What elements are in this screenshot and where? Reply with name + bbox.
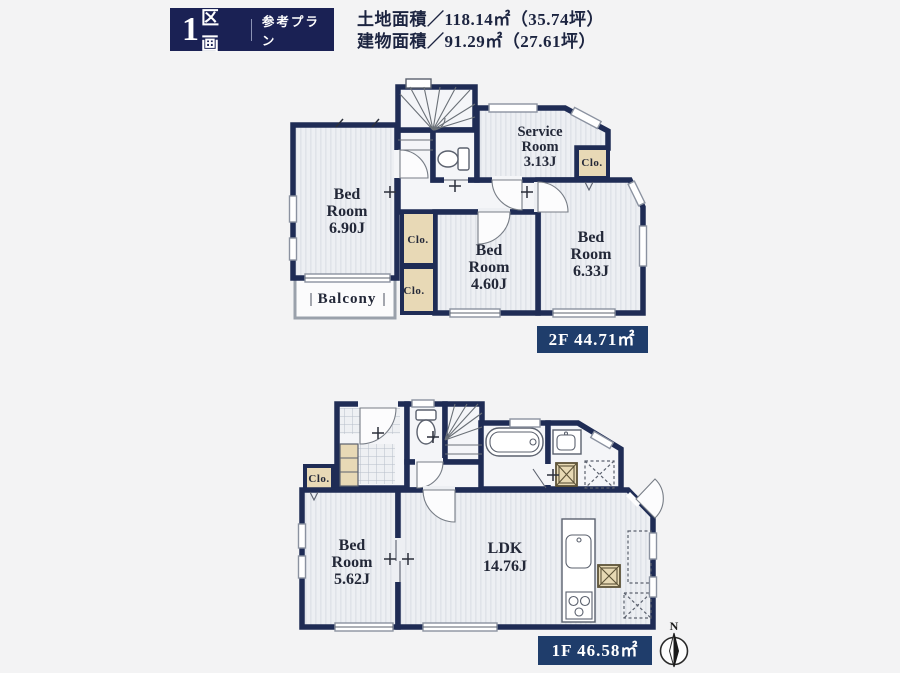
- north-label: N: [670, 619, 679, 633]
- bedroom-460-line2: Room: [469, 259, 511, 276]
- bedroom-633-line2: Room: [571, 246, 613, 263]
- floor-plan-svg: Bed Room 6.90J Service Room 3.13J Bed Ro…: [0, 0, 900, 673]
- floor-hatch: [598, 565, 620, 587]
- service-room-line1: Service: [517, 124, 563, 140]
- closet-2f-lower-label: Clo.: [403, 285, 424, 297]
- bedroom-562-area: 5.62J: [334, 571, 370, 588]
- bedroom-460-area: 4.60J: [471, 276, 507, 293]
- bathtub: [486, 428, 543, 456]
- floor-plan-page: 1 区画 参考プラン 土地面積／118.14㎡（35.74坪） 建物面積／91.…: [0, 0, 900, 673]
- service-room-line2: Room: [521, 139, 558, 155]
- washer-pan: [556, 463, 577, 486]
- bedroom-690-area: 6.90J: [329, 220, 365, 237]
- ldk-area: 14.76J: [483, 558, 527, 575]
- bedroom-633-line1: Bed: [578, 229, 605, 246]
- floor-1f-label: 1F 46.58㎡: [552, 640, 639, 660]
- floor-2f-plan: Bed Room 6.90J Service Room 3.13J Bed Ro…: [290, 79, 649, 353]
- bedroom-633-area: 6.33J: [573, 263, 609, 280]
- balcony-label: Balcony: [318, 291, 377, 307]
- stairs-top-vent: [406, 79, 431, 88]
- bedroom-460-line1: Bed: [476, 242, 503, 259]
- service-room-area: 3.13J: [524, 154, 557, 170]
- closet-2f-upper-label: Clo.: [407, 234, 428, 246]
- bedroom-690-line2: Room: [327, 203, 369, 220]
- bedroom-690-line1: Bed: [334, 186, 361, 203]
- floor-2f-label: 2F 44.71㎡: [549, 329, 636, 349]
- floor-1f-plan: Bed Room 5.62J LDK 14.76J Clo. 1F 46.58㎡…: [299, 400, 688, 667]
- shoe-cabinet: [340, 444, 358, 486]
- washbasin: [553, 430, 581, 454]
- closet-2f-right-label: Clo.: [581, 157, 602, 169]
- ldk-line1: LDK: [488, 540, 523, 557]
- kitchen-counter: [562, 519, 595, 622]
- compass: N: [661, 619, 688, 667]
- closet-1f-label: Clo.: [308, 473, 329, 485]
- bedroom-562-line1: Bed: [339, 537, 366, 554]
- bedroom-562-line2: Room: [332, 554, 374, 571]
